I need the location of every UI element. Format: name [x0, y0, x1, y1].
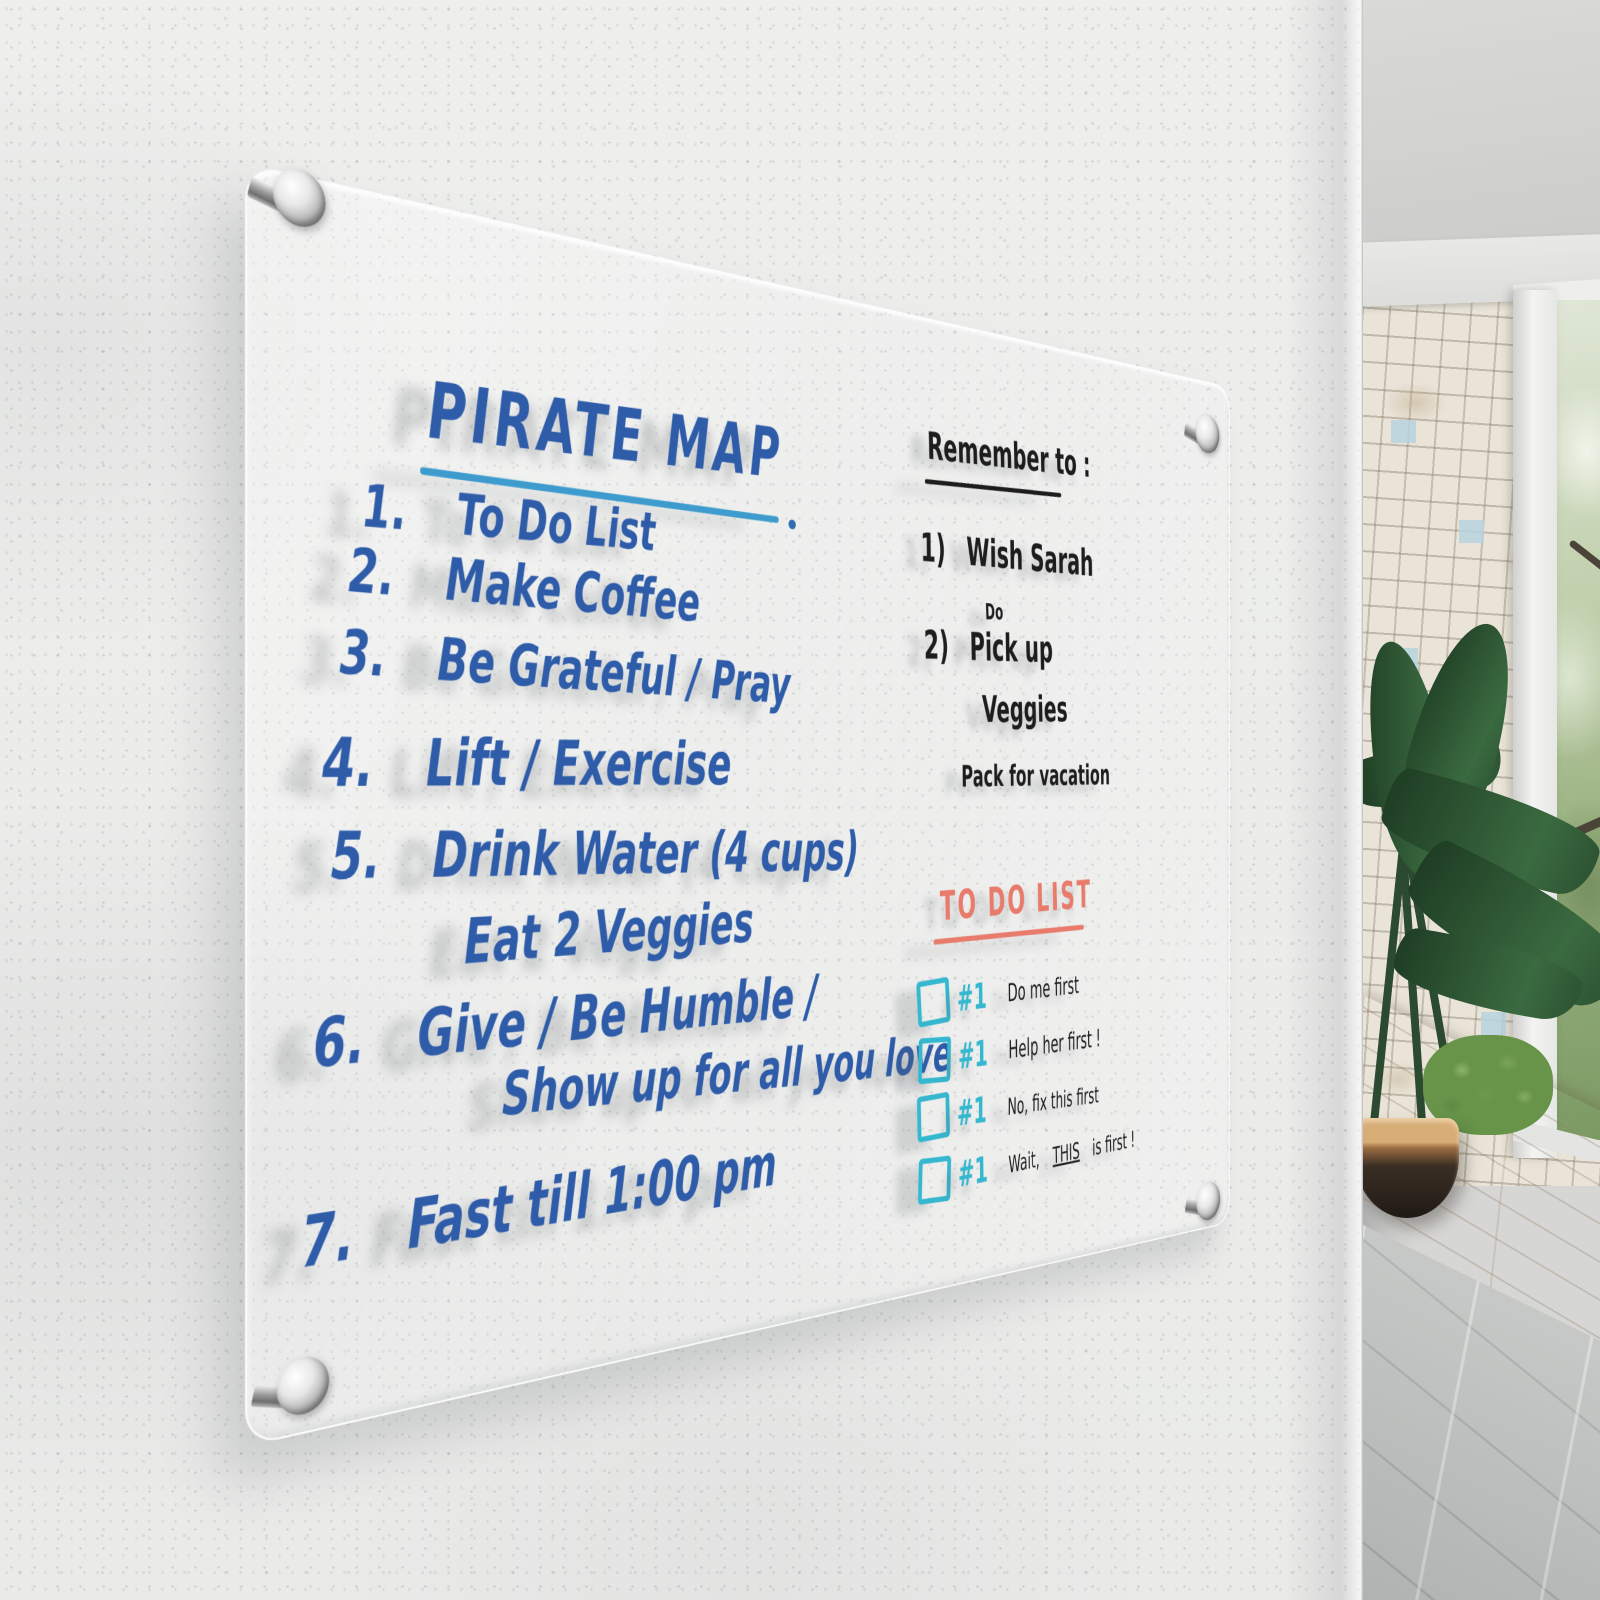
- standoff-bottom-right: [1196, 1179, 1220, 1222]
- todo-item-text-underlined: THIS: [1053, 1137, 1080, 1169]
- priority-tag: #1: [958, 1149, 988, 1197]
- standoff-top-left: [273, 163, 326, 231]
- wall-corner-edge: [1285, 0, 1363, 1600]
- ceiling: [1363, 0, 1600, 255]
- todo-item-text-post: is first !: [1092, 1126, 1135, 1161]
- remember-underline: [925, 479, 1061, 497]
- checkbox-icon: [918, 1036, 951, 1084]
- priority-tag: #1: [957, 975, 987, 1020]
- list-item-text: Fast till 1:00 pm: [408, 1130, 777, 1265]
- blue-tile: [1481, 1012, 1506, 1035]
- standoff-cap: [1196, 1179, 1220, 1222]
- remember-item-text: Wish Sarah: [966, 530, 1093, 586]
- todo-title: TO DO LIST: [940, 872, 1093, 931]
- standoff-top-right: [1196, 412, 1220, 455]
- blue-tile: [1459, 520, 1484, 543]
- priority-tag: #1: [957, 1089, 987, 1135]
- todo-item-text: No, fix this first: [1007, 1081, 1099, 1121]
- list-item-text: Drink Water (4 cups): [432, 819, 859, 893]
- checkbox-icon: [917, 1092, 950, 1143]
- list-item-text: Lift / Exercise: [426, 725, 732, 802]
- hallway-room: [1363, 0, 1600, 1600]
- priority-tag: #1: [958, 1032, 988, 1077]
- item-number: 1.: [362, 470, 407, 544]
- standoff-cap: [273, 163, 326, 231]
- blue-tile: [1391, 420, 1416, 443]
- remember-item-number: 1): [920, 525, 946, 573]
- remember-title: Remember to :: [927, 424, 1091, 486]
- window-frame: [1513, 290, 1557, 1158]
- todo-item-text: Help her first !: [1008, 1024, 1100, 1065]
- standoff-cap: [1196, 412, 1220, 455]
- scene: PIRATE MAP 1. To Do List 2. Make Coffee …: [0, 0, 1600, 1600]
- list-item-text: Be Grateful / Pray: [437, 626, 791, 717]
- standoff-cap: [277, 1352, 329, 1420]
- acrylic-whiteboard: PIRATE MAP 1. To Do List 2. Make Coffee …: [245, 163, 1230, 1447]
- item-number: 6.: [313, 1000, 365, 1084]
- todo-item-text-pre: Wait,: [1008, 1145, 1040, 1179]
- remember-extra: Pack for vacation: [961, 759, 1110, 794]
- remember-inserted-note: Do: [985, 599, 1004, 625]
- remember-item-number: 2): [923, 623, 949, 669]
- todo-item-text: Do me first: [1007, 971, 1079, 1008]
- item-number: 7.: [300, 1194, 354, 1284]
- item-number: 5.: [331, 819, 381, 896]
- checkbox-icon: [918, 1155, 951, 1205]
- item-number: 2.: [348, 535, 395, 610]
- list-item-text: Eat 2 Veggies: [464, 890, 754, 979]
- item-number: 3.: [339, 617, 387, 691]
- checkbox-icon: [916, 977, 951, 1028]
- tree-branch: [1568, 539, 1600, 588]
- remember-item-line2: Veggies: [982, 688, 1069, 731]
- item-number: 4.: [322, 723, 374, 803]
- standoff-bottom-left: [277, 1352, 329, 1420]
- remember-item-text: Pick up: [969, 625, 1053, 672]
- marker-dot: [789, 519, 796, 530]
